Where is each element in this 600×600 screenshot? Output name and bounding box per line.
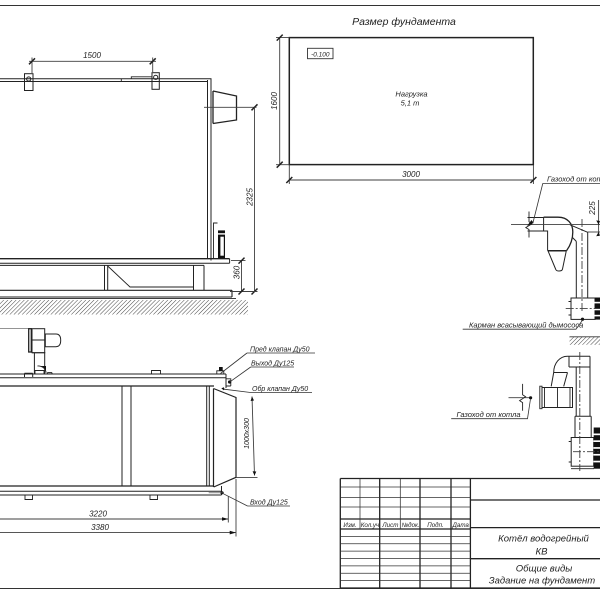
svg-text:5,1 т: 5,1 т: [401, 99, 420, 108]
svg-text:Общие виды: Общие виды: [516, 564, 573, 575]
svg-text:№док.: №док.: [401, 522, 419, 529]
svg-text:Газоход от котла: Газоход от котла: [547, 175, 600, 184]
svg-text:360: 360: [233, 265, 242, 279]
svg-text:3380: 3380: [91, 523, 109, 532]
svg-text:Выход Ду125: Выход Ду125: [251, 359, 294, 367]
svg-text:1500: 1500: [83, 51, 101, 60]
svg-text:Дата: Дата: [452, 522, 470, 529]
svg-text:Кол.уч: Кол.уч: [361, 522, 380, 529]
svg-text:3220: 3220: [89, 510, 107, 519]
svg-text:Лист: Лист: [381, 522, 398, 529]
svg-text:Подп.: Подп.: [427, 522, 443, 529]
svg-text:2325: 2325: [246, 188, 255, 207]
svg-text:225: 225: [588, 201, 597, 216]
svg-text:Изм.: Изм.: [343, 522, 356, 529]
svg-text:Газоход от котла: Газоход от котла: [457, 410, 521, 419]
svg-text:Нагрузка: Нагрузка: [395, 90, 427, 99]
svg-text:Карман всасывающий дымососа: Карман всасывающий дымососа: [469, 320, 583, 329]
svg-text:1000х300: 1000х300: [244, 418, 251, 449]
svg-text:Обр клапан Ду50: Обр клапан Ду50: [252, 385, 308, 393]
svg-text:Размер фундамента: Размер фундамента: [352, 16, 456, 28]
svg-text:Пред клапан Ду50: Пред клапан Ду50: [250, 346, 310, 354]
svg-text:-0.100: -0.100: [311, 51, 330, 58]
svg-text:3000: 3000: [402, 170, 420, 179]
svg-text:Задание на фундамент: Задание на фундамент: [489, 576, 595, 587]
svg-text:Котёл водогрейный: Котёл водогрейный: [498, 534, 589, 545]
svg-text:КВ: КВ: [536, 547, 549, 558]
svg-text:1600: 1600: [270, 92, 279, 110]
svg-text:Вход Ду125: Вход Ду125: [250, 498, 288, 506]
